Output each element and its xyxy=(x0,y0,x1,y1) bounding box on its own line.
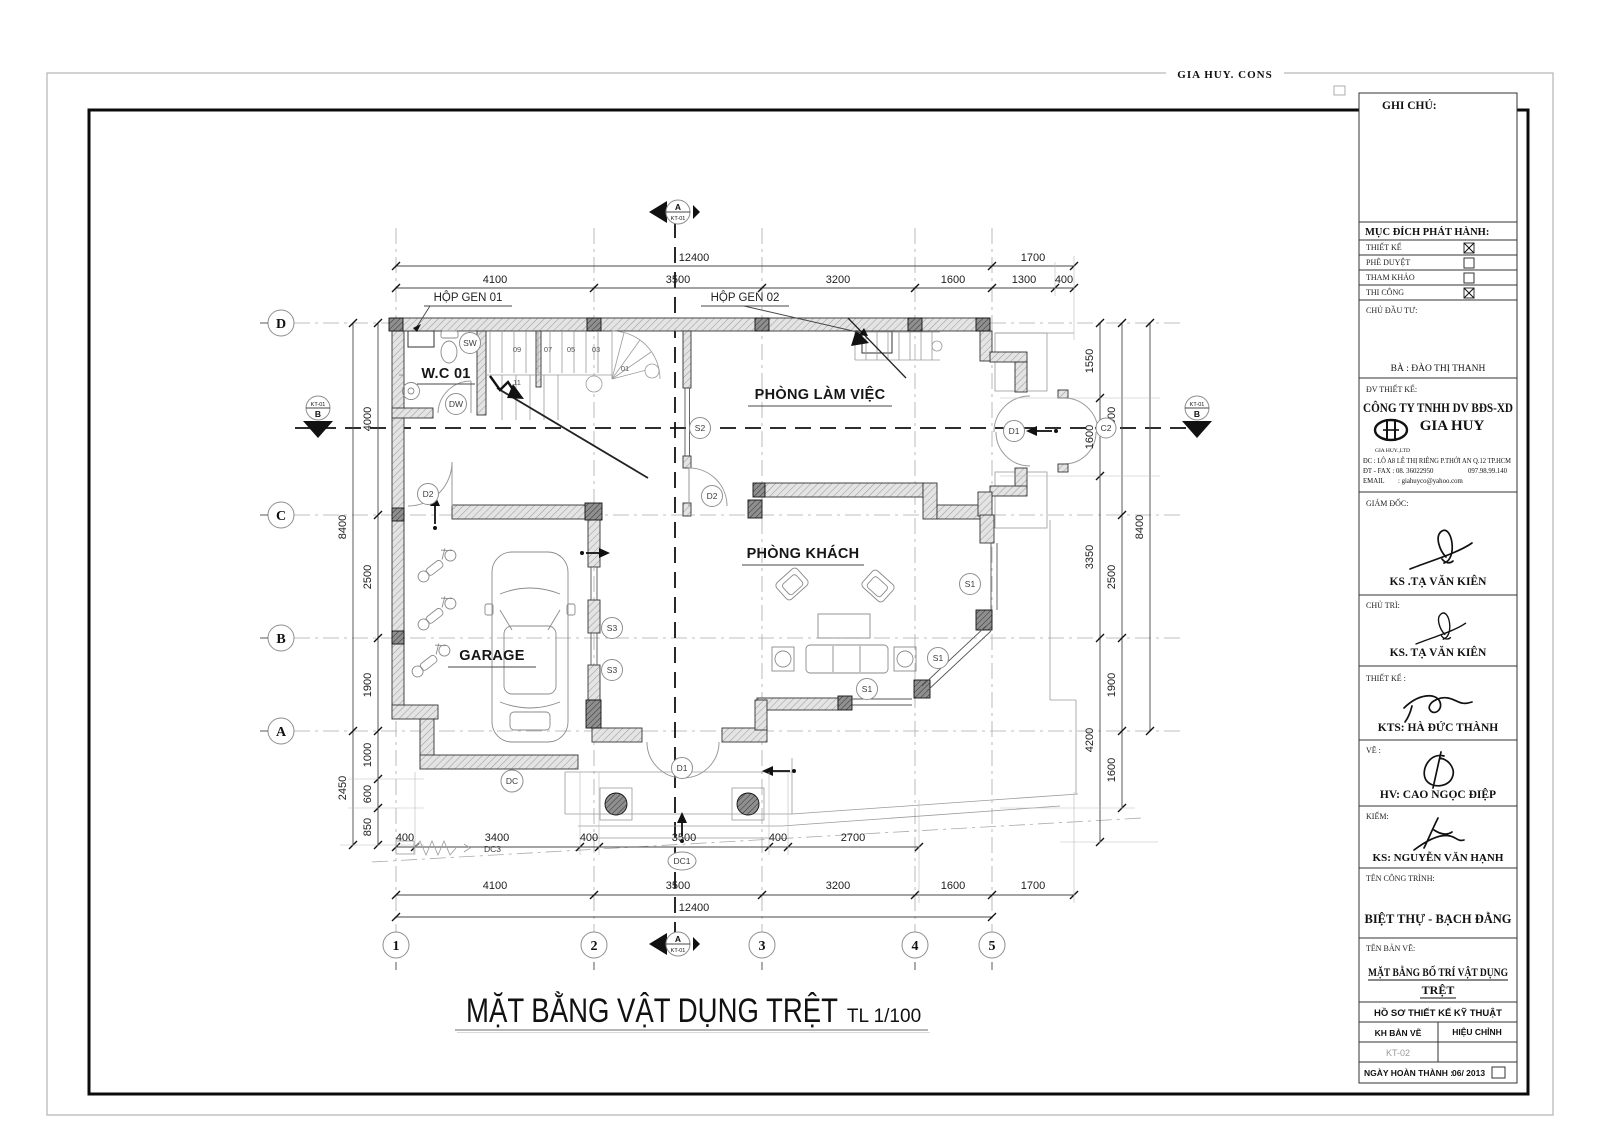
grid-label: 1 xyxy=(393,939,400,954)
room-label-office: PHÒNG LÀM VIỆC xyxy=(755,385,886,403)
company-header: GIA HUY. CONS xyxy=(1177,69,1272,81)
grid-label: A xyxy=(276,725,287,740)
sheet-number: KT-02 xyxy=(1386,1048,1410,1058)
tag-s3: S3 xyxy=(607,665,618,675)
signer-role: VẼ : xyxy=(1366,745,1381,755)
release-label: PHÊ DUYỆT xyxy=(1366,257,1410,267)
grid-label: B xyxy=(276,632,285,647)
dim-text: 1600 xyxy=(941,880,965,892)
dim-text: 3500 xyxy=(666,274,690,286)
room-label-living: PHÒNG KHÁCH xyxy=(747,544,860,562)
dim-text: 4100 xyxy=(483,274,507,286)
dim-text: 2500 xyxy=(1106,565,1118,589)
stair-num: 05 xyxy=(567,345,575,354)
dim-text: 3200 xyxy=(826,880,850,892)
company-phone: ĐT - FAX : 08. 36022950 xyxy=(1363,468,1434,475)
gen2-label: HỘP GEN 02 xyxy=(711,291,780,304)
section-sheet: KT-01 xyxy=(671,948,686,954)
dim-text: 3500 xyxy=(666,880,690,892)
release-label: THI CÔNG xyxy=(1366,287,1404,297)
dim-text: 1600 xyxy=(941,274,965,286)
stair-num: 09 xyxy=(513,345,521,354)
dim-text: 850 xyxy=(362,818,374,836)
dim-text: 3400 xyxy=(485,832,509,844)
signer-role: KIỂM: xyxy=(1366,811,1389,821)
grid-label: 3 xyxy=(759,939,766,954)
tag-s1: S1 xyxy=(933,653,944,663)
drawing-title: MẶT BẰNG VẬT DỤNG TRỆT xyxy=(466,992,838,1030)
signer-name: KTS: HÀ ĐỨC THÀNH xyxy=(1378,720,1498,734)
dim-text: 1900 xyxy=(1106,673,1118,697)
dim-text: 3350 xyxy=(1084,545,1096,569)
dim-text: 1700 xyxy=(1021,252,1045,264)
dim-text: 4100 xyxy=(483,880,507,892)
notes-label: GHI CHÚ: xyxy=(1382,98,1437,112)
dim-text: 600 xyxy=(362,785,374,803)
project-name: BIỆT THỰ - BẠCH ĐẰNG xyxy=(1364,911,1511,926)
hieu-chinh-label: HIỆU CHỈNH xyxy=(1452,1026,1502,1037)
tag-dw: DW xyxy=(449,399,463,409)
dim-text: 400 xyxy=(580,832,598,844)
tag-d1: D1 xyxy=(677,763,688,773)
dim-text: 8400 xyxy=(1134,515,1146,539)
dim-text: 2450 xyxy=(337,776,349,800)
grid-label: 5 xyxy=(989,939,996,954)
dim-text: 2500 xyxy=(362,565,374,589)
stair-num: 11 xyxy=(513,378,521,387)
kh-ban-ve-label: KH BẢN VẼ xyxy=(1375,1027,1422,1038)
drawing-scale: TL 1/100 xyxy=(847,1006,921,1027)
porch-column xyxy=(605,793,627,815)
grid-label: 2 xyxy=(591,939,598,954)
gen1-label: HỘP GEN 01 xyxy=(434,291,503,304)
tag-dc1: DC1 xyxy=(673,856,690,866)
grid-label: 4 xyxy=(912,939,919,954)
room-label-wc: W.C 01 xyxy=(421,366,470,382)
dim-text: 1700 xyxy=(1021,880,1045,892)
drawing-name-2: TRỆT xyxy=(1422,983,1455,997)
tag-c2: C2 xyxy=(1101,423,1112,433)
section-sheet: KT-01 xyxy=(1190,402,1205,408)
dim-text: 12400 xyxy=(679,902,710,914)
tag-d1: D1 xyxy=(1009,426,1020,436)
release-label: THIẾT KẾ xyxy=(1366,242,1402,252)
company-sub: GIA HUY.,LTD xyxy=(1375,448,1410,454)
dim-text: 4000 xyxy=(362,407,374,431)
tag-dc: DC xyxy=(506,776,518,786)
title-block: GHI CHÚ: MỤC ĐÍCH PHÁT HÀNH: THIẾT KẾ PH… xyxy=(1334,86,1517,1083)
dossier-label: HỒ SƠ THIẾT KẾ KỸ THUẬT xyxy=(1374,1007,1502,1019)
dim-text: 1000 xyxy=(362,743,374,767)
checkbox xyxy=(1464,273,1474,283)
dim-text: 1600 xyxy=(1106,758,1118,782)
signer-name: KS. TẠ VĂN KIÊN xyxy=(1390,645,1487,659)
project-label: TÊN CÔNG TRÌNH: xyxy=(1366,873,1435,883)
stair-num: 03 xyxy=(592,345,600,354)
grid-label: C xyxy=(276,509,286,524)
dim-text: 400 xyxy=(396,832,414,844)
owner-name: BÀ : ĐÀO THỊ THANH xyxy=(1391,362,1486,374)
company-phone2: 097.98.99.140 xyxy=(1468,468,1508,475)
tag-s1: S1 xyxy=(965,579,976,589)
signer-name: KS: NGUYỄN VĂN HẠNH xyxy=(1373,851,1504,864)
signer-role: GIÁM ĐỐC: xyxy=(1366,498,1408,508)
tag-d2: D2 xyxy=(423,489,434,499)
section-letter: A xyxy=(675,202,681,212)
floor-plan-sheet: GIA HUY. CONS xyxy=(0,0,1600,1132)
dim-text: 1600 xyxy=(1084,425,1096,449)
dim-text: 4200 xyxy=(1084,728,1096,752)
designer-label: ĐV THIẾT KẾ: xyxy=(1366,384,1417,394)
section-letter: A xyxy=(675,934,681,944)
section-letter: B xyxy=(315,409,321,419)
signer-name: KS .TẠ VĂN KIÊN xyxy=(1390,574,1488,588)
stair-num: 01 xyxy=(621,364,629,373)
tag-s2: S2 xyxy=(695,423,706,433)
date-label: NGÀY HOÀN THÀNH : xyxy=(1364,1068,1453,1078)
tag-dc3: DC3 xyxy=(484,844,501,854)
date-stamp-box xyxy=(1492,1067,1505,1078)
sheet-frame: GIA HUY. CONS xyxy=(47,66,1553,1115)
dim-text: 2700 xyxy=(841,832,865,844)
company-address: ĐC : LÔ A8 LÊ THỊ RIÊNG P.THỚI AN Q.12 T… xyxy=(1363,457,1511,465)
dim-text: 3200 xyxy=(826,274,850,286)
tag-s1: S1 xyxy=(862,684,873,694)
company-name-2: GIA HUY xyxy=(1420,418,1485,434)
stair-num: 07 xyxy=(544,345,552,354)
porch-column xyxy=(737,793,759,815)
section-sheet: KT-01 xyxy=(671,216,686,222)
dim-text: 400 xyxy=(1055,274,1073,286)
dim-text: 1300 xyxy=(1012,274,1036,286)
signer-role: THIẾT KẾ : xyxy=(1366,673,1406,683)
signer-role: CHỦ TRÌ: xyxy=(1366,600,1400,610)
room-label-garage: GARAGE xyxy=(459,648,524,664)
release-label: THAM KHẢO xyxy=(1366,272,1415,282)
release-header: MỤC ĐÍCH PHÁT HÀNH: xyxy=(1365,226,1489,238)
dim-text: 3500 xyxy=(672,832,696,844)
tag-d2: D2 xyxy=(707,491,718,501)
dim-text: 1550 xyxy=(1084,349,1096,373)
section-sheet: KT-01 xyxy=(311,402,326,408)
dim-text: 1900 xyxy=(362,673,374,697)
dim-text: 8400 xyxy=(337,515,349,539)
tag-sw: SW xyxy=(463,338,477,348)
dim-text: 400 xyxy=(769,832,787,844)
company-name: CÔNG TY TNHH DV BĐS-XD xyxy=(1363,400,1513,415)
date-value: 06/ 2013 xyxy=(1452,1068,1485,1078)
signer-name: HV: CAO NGỌC ĐIỆP xyxy=(1380,787,1496,801)
owner-label: CHỦ ĐẦU TƯ: xyxy=(1366,305,1417,315)
drawing-name-label: TÊN BẢN VẼ: xyxy=(1366,943,1415,953)
tag-s3: S3 xyxy=(607,623,618,633)
drawing-name-1: MẶT BẰNG BỐ TRÍ VẬT DỤNG xyxy=(1368,964,1508,979)
checkbox xyxy=(1464,258,1474,268)
dim-text: 12400 xyxy=(679,252,710,264)
section-letter: B xyxy=(1194,409,1200,419)
grid-label: D xyxy=(276,317,286,332)
company-email: : giahuyco@yahoo.com xyxy=(1398,478,1463,485)
company-email-label: EMAIL xyxy=(1363,478,1385,485)
